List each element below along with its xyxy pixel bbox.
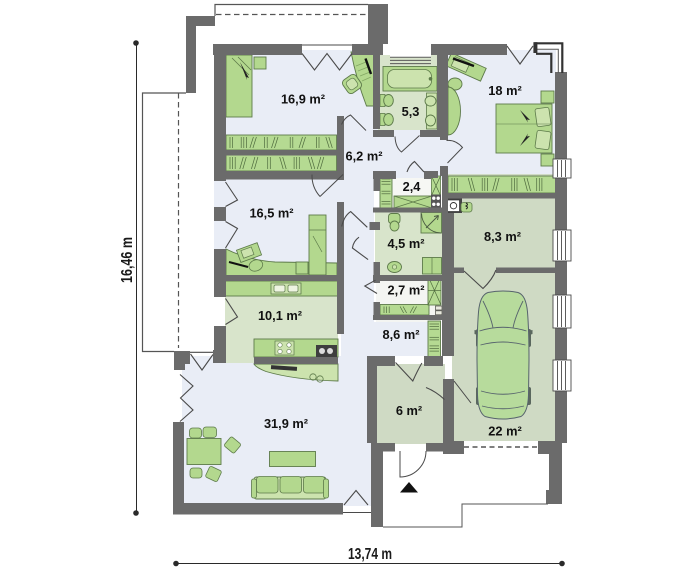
svg-text:22 m²: 22 m² <box>488 424 521 439</box>
svg-text:18 m²: 18 m² <box>488 83 521 98</box>
svg-text:4,5 m²: 4,5 m² <box>388 236 425 251</box>
svg-text:31,9 m²: 31,9 m² <box>264 416 308 431</box>
svg-text:6,2 m²: 6,2 m² <box>346 149 383 164</box>
svg-text:16,9 m²: 16,9 m² <box>281 91 325 106</box>
svg-text:10,1 m²: 10,1 m² <box>258 308 302 323</box>
svg-text:16,46 m: 16,46 m <box>119 237 136 283</box>
svg-text:2,7 m²: 2,7 m² <box>388 283 425 298</box>
svg-text:16,5 m²: 16,5 m² <box>249 206 293 221</box>
svg-text:8,6 m²: 8,6 m² <box>383 327 420 342</box>
svg-text:6 m²: 6 m² <box>396 403 422 418</box>
svg-text:8,3 m²: 8,3 m² <box>484 229 521 244</box>
svg-text:13,74 m: 13,74 m <box>348 546 392 563</box>
svg-text:2,4: 2,4 <box>403 179 422 194</box>
svg-text:5,3: 5,3 <box>402 104 420 119</box>
